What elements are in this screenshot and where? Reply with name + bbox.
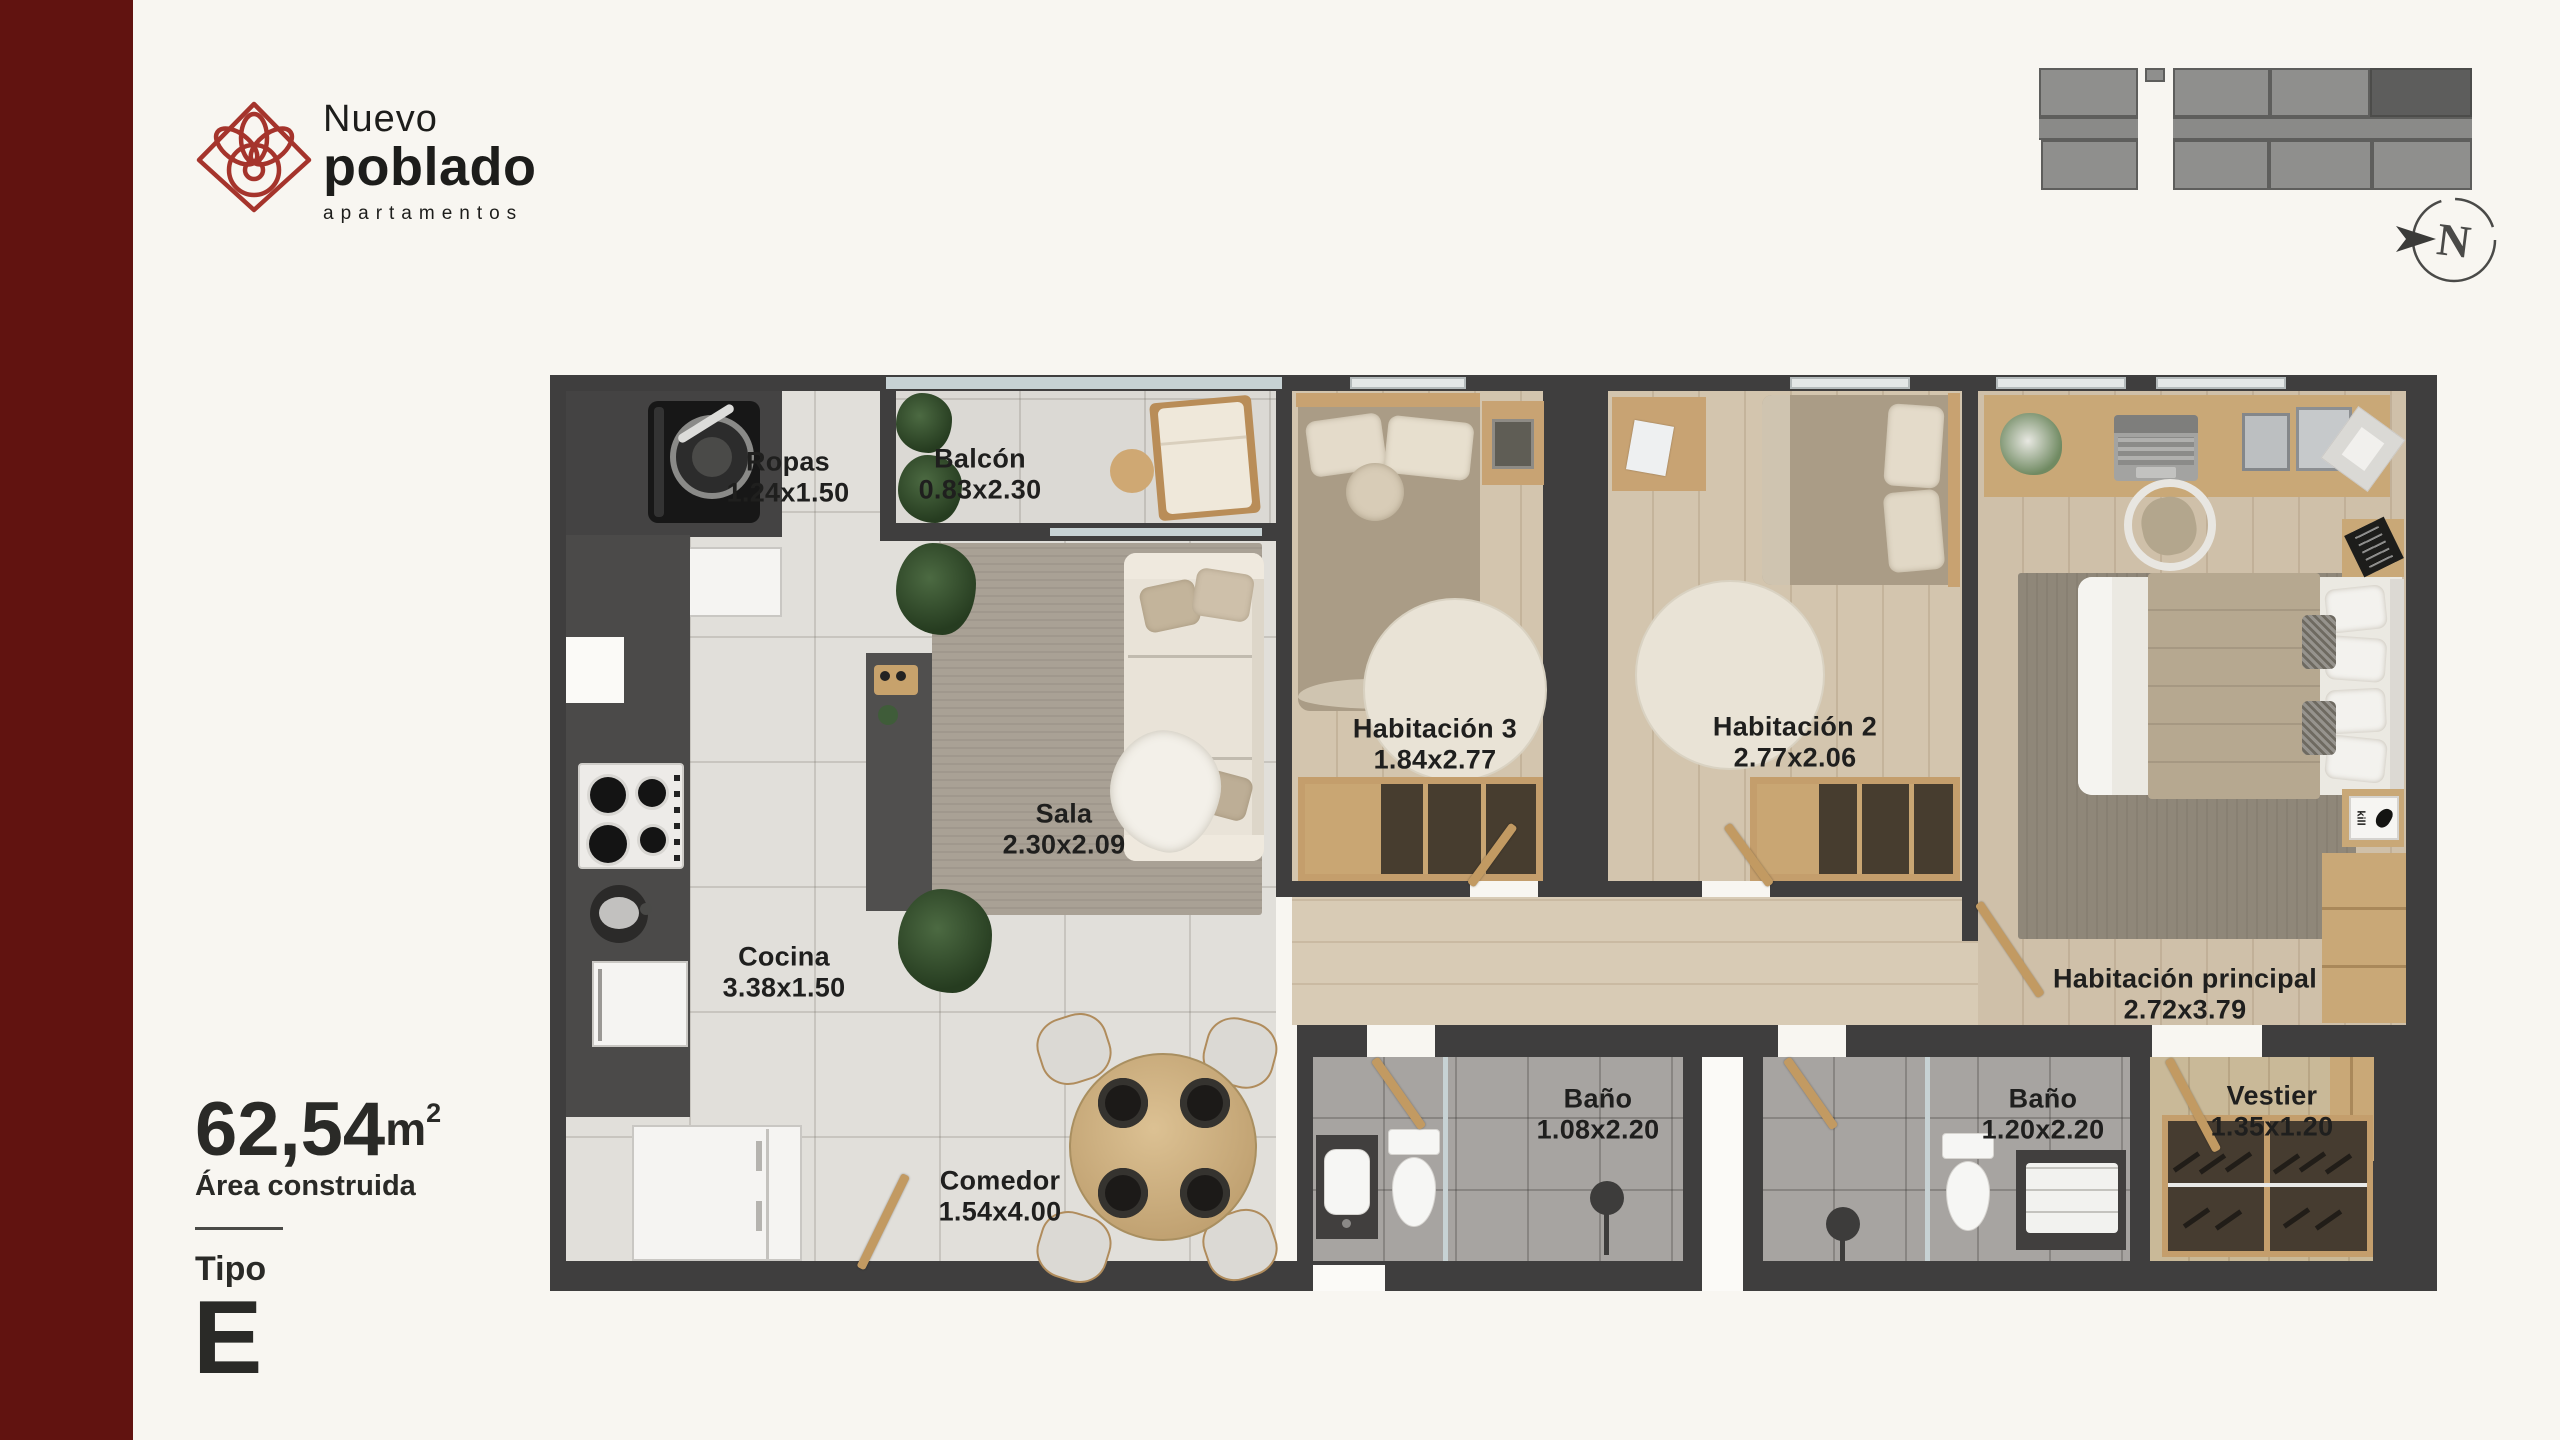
room-label-habitacion2: Habitación 2 2.77x2.06 bbox=[1713, 712, 1877, 775]
window-master-1 bbox=[1996, 377, 2126, 389]
plate bbox=[1180, 1078, 1230, 1128]
brand-tagline: apartamentos bbox=[323, 203, 536, 225]
room-label-comedor: Comedor 1.54x4.00 bbox=[939, 1166, 1062, 1229]
room-label-habitacion-principal: Habitación principal 2.72x3.79 bbox=[2053, 964, 2317, 1027]
room-name: Balcón bbox=[919, 444, 1042, 475]
shower-glass-bathroom1 bbox=[1443, 1057, 1448, 1261]
room-dims: 2.72x3.79 bbox=[2053, 995, 2317, 1026]
nightstand-master-bottom: kill bbox=[2342, 789, 2404, 847]
master-duvet bbox=[2148, 573, 2320, 799]
area-label: Área construida bbox=[195, 1170, 441, 1203]
room-label-vestier: Vestier 1.35x1.20 bbox=[2211, 1081, 2334, 1144]
laptop bbox=[2114, 415, 2198, 481]
closet-bedroom2 bbox=[1750, 777, 1960, 881]
keyplan-unit-highlighted bbox=[2370, 68, 2472, 117]
vanity-bathroom2 bbox=[2016, 1150, 2126, 1250]
desk-plant bbox=[2000, 413, 2062, 475]
wall-bath-top-2 bbox=[1435, 1025, 1778, 1057]
room-name: Habitación 3 bbox=[1353, 714, 1517, 745]
kitchen-sink bbox=[590, 885, 648, 943]
compass-icon: N bbox=[2392, 192, 2512, 292]
plant bbox=[896, 543, 976, 635]
balcony-side-table bbox=[1110, 449, 1154, 493]
cushion bbox=[1346, 463, 1404, 521]
wall-bedroom2-master bbox=[1962, 391, 1978, 897]
kitchen-island bbox=[866, 653, 936, 911]
stats-divider bbox=[195, 1227, 283, 1230]
room-dims: 1.54x4.00 bbox=[939, 1197, 1062, 1228]
room-name: Baño bbox=[1982, 1084, 2105, 1115]
wall-shaft-left bbox=[1683, 1057, 1702, 1261]
wall-shaft-right bbox=[1743, 1057, 1763, 1261]
brand-wordmark: Nuevo poblado apartamentos bbox=[323, 100, 536, 225]
room-dims: 1.35x1.20 bbox=[2211, 1112, 2334, 1143]
room-dims: 0.83x2.30 bbox=[919, 475, 1042, 506]
room-label-bano2: Baño 1.20x2.20 bbox=[1982, 1084, 2105, 1147]
accent-cushion bbox=[2302, 615, 2336, 669]
fridge bbox=[632, 1125, 802, 1261]
wall-bath-top-1 bbox=[1297, 1025, 1367, 1057]
accent-cushion bbox=[2302, 701, 2336, 755]
keyplan-unit bbox=[2269, 140, 2372, 190]
wall-left bbox=[550, 375, 566, 1291]
room-label-sala: Sala 2.30x2.09 bbox=[1003, 799, 1126, 862]
left-accent-bar bbox=[0, 0, 133, 1440]
keyplan-shaft-stub bbox=[2145, 68, 2165, 82]
plant bbox=[898, 889, 992, 993]
wall-balcony-left bbox=[880, 391, 896, 523]
room-dims: 1.84x2.77 bbox=[1353, 745, 1517, 776]
dining-table bbox=[1069, 1053, 1257, 1241]
pillow bbox=[1883, 403, 1945, 489]
keyplan-diagram bbox=[2039, 68, 2472, 190]
shower-glass-bathroom2 bbox=[1925, 1057, 1930, 1261]
book bbox=[2344, 517, 2404, 578]
balcony-sliding-door-glass bbox=[1050, 528, 1262, 536]
keyplan-corridor bbox=[2039, 117, 2472, 140]
desk-chair bbox=[2124, 479, 2216, 571]
room-dims: 1.20x2.20 bbox=[1982, 1115, 2105, 1146]
nightstand-master-top bbox=[2342, 519, 2404, 577]
room-name: Habitación principal bbox=[2053, 964, 2317, 995]
room-dims: 2.77x2.06 bbox=[1713, 743, 1877, 774]
room-dims: 3.38x1.50 bbox=[723, 973, 846, 1004]
pillow bbox=[1883, 489, 1946, 574]
room-name: Baño bbox=[1537, 1084, 1660, 1115]
shower-drain-bathroom2 bbox=[1826, 1207, 1860, 1241]
wall-bottom bbox=[550, 1261, 2437, 1291]
wall-bedrooms-south-2 bbox=[1538, 881, 1702, 897]
master-headboard bbox=[2390, 579, 2404, 793]
wall-bedrooms-south-1 bbox=[1276, 881, 1470, 897]
room-label-bano1: Baño 1.08x2.20 bbox=[1537, 1084, 1660, 1147]
type-value: E bbox=[193, 1289, 441, 1388]
sink-bathroom1 bbox=[1324, 1149, 1370, 1215]
keyplan-unit bbox=[2372, 140, 2472, 190]
plate bbox=[1098, 1168, 1148, 1218]
wall-right-lower bbox=[2373, 1025, 2437, 1291]
keyplan-unit bbox=[2173, 140, 2269, 190]
brand-name-line1: Nuevo bbox=[323, 100, 536, 138]
brand-logo-icon bbox=[193, 98, 315, 216]
wall-top bbox=[550, 375, 2437, 391]
room-name: Ropas bbox=[727, 447, 850, 478]
area-value: 62,54 bbox=[195, 1092, 385, 1168]
master-wardrobe bbox=[2322, 853, 2406, 1023]
shaft-void bbox=[1702, 1057, 1743, 1291]
toilet-tank-bathroom1 bbox=[1388, 1129, 1440, 1155]
room-dims: 1.24x1.50 bbox=[727, 478, 850, 509]
wall-living-bedroom3 bbox=[1276, 391, 1292, 897]
wall-bathroom2-vestier bbox=[2130, 1025, 2150, 1261]
window-bedroom3 bbox=[1350, 377, 1466, 389]
plate bbox=[1098, 1078, 1148, 1128]
room-label-habitacion3: Habitación 3 1.84x2.77 bbox=[1353, 714, 1517, 777]
nightstand-bedroom3 bbox=[1482, 401, 1544, 485]
desk-bedroom2 bbox=[1612, 397, 1706, 491]
floor-plan: kill bbox=[550, 375, 2437, 1306]
desk-frame bbox=[2242, 413, 2290, 471]
kitchen-cabinet bbox=[592, 961, 688, 1047]
page: Nuevo poblado apartamentos N 62,54 m 2 Á… bbox=[0, 0, 2560, 1440]
wall-right bbox=[2406, 375, 2437, 1057]
sofa-pillow bbox=[1191, 567, 1256, 623]
room-name: Cocina bbox=[723, 942, 846, 973]
art-frame: kill bbox=[2349, 796, 2399, 840]
opening-bottom-1 bbox=[1313, 1265, 1385, 1291]
balcony-lounge-chair bbox=[1149, 395, 1261, 521]
wall-bath-top-3 bbox=[1846, 1025, 2152, 1057]
wall-bedroom3-bedroom2 bbox=[1543, 391, 1608, 897]
keyplan-unit bbox=[2270, 68, 2370, 117]
window-bedroom2 bbox=[1790, 377, 1910, 389]
window-master-2 bbox=[2156, 377, 2286, 389]
bed2-headboard bbox=[1948, 393, 1960, 587]
vanity-bathroom1 bbox=[1316, 1135, 1378, 1239]
keyplan-unit bbox=[2173, 68, 2270, 117]
shower-drain-bathroom1 bbox=[1590, 1181, 1624, 1215]
room-label-balcon: Balcón 0.83x2.30 bbox=[919, 444, 1042, 507]
wall-vestier-top bbox=[2262, 1025, 2406, 1057]
art-caption: kill bbox=[2355, 810, 2367, 825]
bed3-headboard bbox=[1296, 393, 1480, 407]
keyplan-unit bbox=[2039, 68, 2138, 117]
area-value-line: 62,54 m 2 bbox=[195, 1092, 441, 1168]
wall-bedrooms-south-3 bbox=[1770, 881, 1978, 897]
plate bbox=[1180, 1168, 1230, 1218]
stove bbox=[578, 763, 684, 869]
room-name: Vestier bbox=[2211, 1081, 2334, 1112]
brand-name-line2: poblado bbox=[323, 140, 536, 194]
compass-north-letter: N bbox=[2434, 213, 2473, 268]
pillow bbox=[1383, 415, 1475, 482]
room-label-ropas: Ropas 1.24x1.50 bbox=[727, 447, 850, 510]
shower-stem-bathroom2 bbox=[1840, 1237, 1845, 1261]
kitchen-window-opening bbox=[566, 637, 624, 703]
room-label-cocina: Cocina 3.38x1.50 bbox=[723, 942, 846, 1005]
room-dims: 1.08x2.20 bbox=[1537, 1115, 1660, 1146]
room-dims: 2.30x2.09 bbox=[1003, 830, 1126, 861]
room-name: Habitación 2 bbox=[1713, 712, 1877, 743]
shower-stem-bathroom1 bbox=[1604, 1213, 1609, 1255]
room-name: Comedor bbox=[939, 1166, 1062, 1197]
area-unit: m bbox=[385, 1106, 426, 1152]
area-unit-exponent: 2 bbox=[426, 1100, 441, 1127]
unit-stats: 62,54 m 2 Área construida Tipo E bbox=[195, 1092, 441, 1388]
towel-bathroom2 bbox=[2026, 1163, 2118, 1233]
wall-bathroom1-left bbox=[1297, 1025, 1313, 1261]
room-name: Sala bbox=[1003, 799, 1126, 830]
sink-faucet bbox=[640, 903, 652, 915]
floor-hallway bbox=[1292, 897, 1978, 1025]
balcony-railing-glass bbox=[886, 377, 1282, 389]
keyplan-unit bbox=[2041, 140, 2138, 190]
